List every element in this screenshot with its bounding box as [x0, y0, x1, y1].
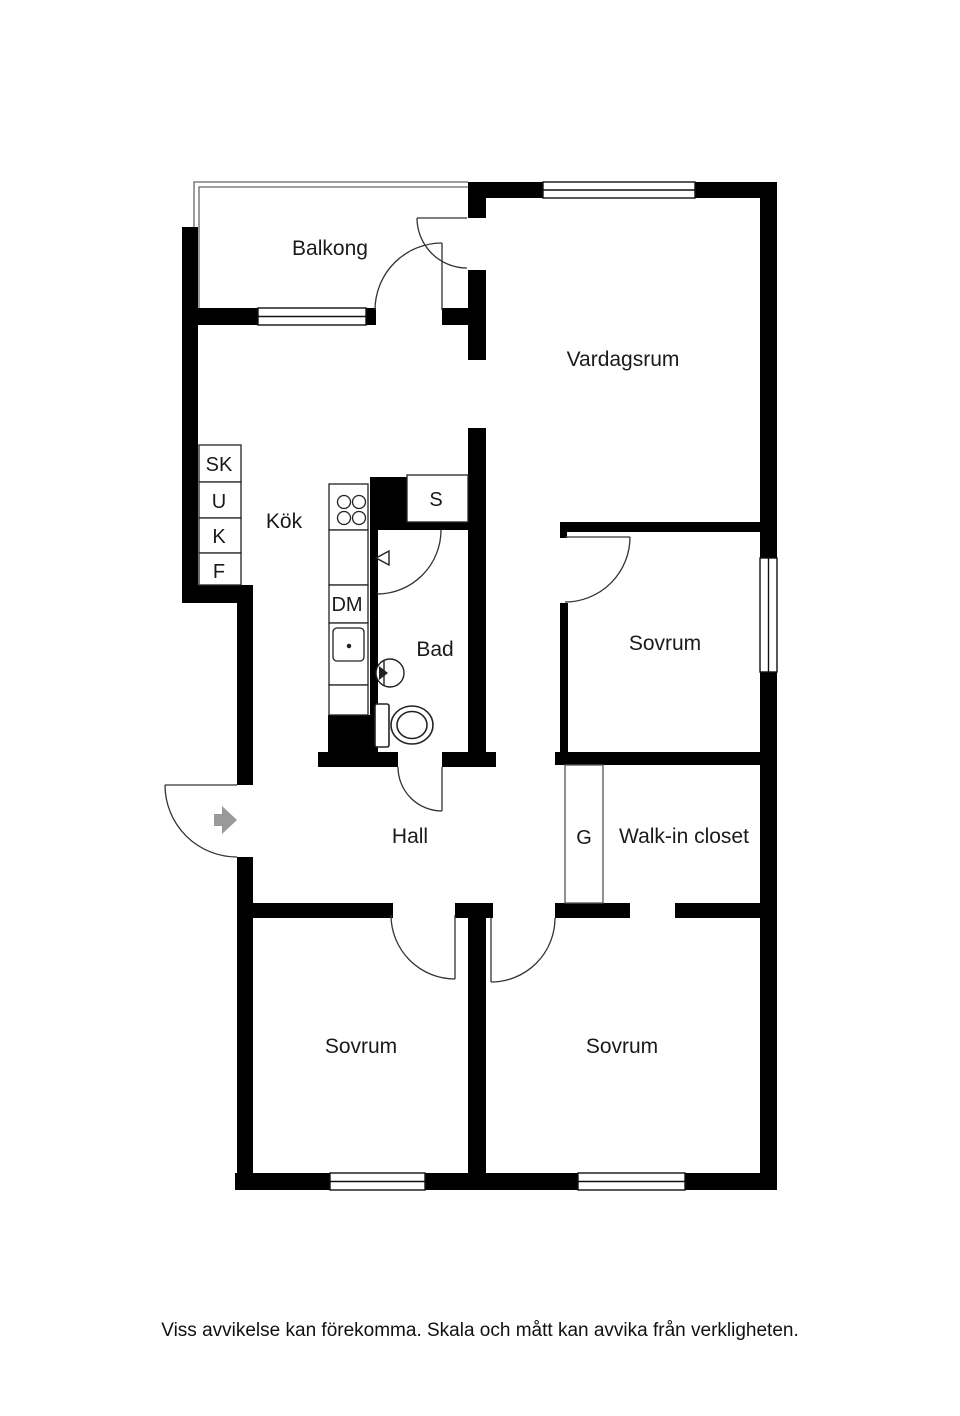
wall-segment: [318, 752, 398, 767]
window: [578, 1173, 685, 1190]
door-bedroom-se: [491, 918, 555, 982]
closet-label-s: S: [429, 489, 442, 511]
wall-segment: [378, 477, 407, 522]
wall-segment: [560, 522, 567, 538]
wall-segment: [237, 903, 393, 918]
wall-segment: [182, 227, 198, 585]
closet-label-k: K: [212, 526, 226, 548]
door-bathroom: [398, 767, 442, 811]
wall-segment: [442, 752, 496, 767]
wall-segment: [182, 308, 258, 325]
wall-segment: [760, 182, 777, 558]
wall-segment: [560, 522, 762, 532]
closet-label-sk: SK: [206, 454, 233, 476]
washbasin-icon: [376, 659, 404, 687]
counter-cabinet: [329, 685, 368, 715]
room-label-walk-in-closet: Walk-in closet: [619, 825, 749, 848]
window: [543, 182, 695, 198]
closet-label-g: G: [576, 827, 592, 849]
closet-label-u: U: [212, 491, 226, 513]
entry-arrow-icon: [214, 806, 237, 834]
wall-segment: [468, 918, 486, 1173]
window: [330, 1173, 425, 1190]
door-bedroom-sw: [391, 915, 455, 979]
wall-segment: [182, 585, 253, 603]
wall-segment: [237, 603, 253, 785]
room-label-balkong: Balkong: [292, 237, 368, 260]
toilet-icon: [375, 704, 433, 747]
appliance-label-dm: DM: [331, 594, 362, 616]
room-label-sovrum-sw: Sovrum: [325, 1035, 397, 1058]
floor-plan: Balkong Vardagsrum Kök Bad Sovrum Hall W…: [0, 0, 960, 1411]
wall-segment: [468, 182, 486, 218]
room-label-bad: Bad: [416, 638, 453, 661]
window: [258, 308, 366, 325]
sink-icon: [333, 628, 364, 661]
wall-segment: [455, 903, 493, 918]
room-label-sovrum-se: Sovrum: [586, 1035, 658, 1058]
room-label-sovrum-ne: Sovrum: [629, 632, 701, 655]
closet-label-f: F: [213, 561, 225, 583]
wall-segment: [425, 1173, 578, 1190]
room-label-kok: Kök: [266, 510, 303, 533]
wall-segment: [555, 752, 767, 765]
wall-segment: [675, 903, 767, 918]
counter-cabinet: [329, 530, 368, 585]
wall-segment: [468, 428, 486, 752]
wall-segment: [560, 603, 568, 752]
wall-segment: [685, 1173, 777, 1190]
wall-segment: [760, 672, 777, 1190]
wall-segment: [555, 903, 630, 918]
door-bedroom-ne: [565, 537, 630, 602]
wall-segment: [366, 308, 376, 325]
wall-segment: [328, 715, 377, 752]
wall-segment: [468, 270, 486, 360]
room-label-vardagsrum: Vardagsrum: [567, 348, 680, 371]
walls: [182, 182, 777, 1190]
disclaimer-text: Viss avvikelse kan förekomma. Skala och …: [161, 1320, 799, 1341]
floor-plan-page: Balkong Vardagsrum Kök Bad Sovrum Hall W…: [0, 0, 960, 1411]
window: [760, 558, 777, 672]
room-label-hall: Hall: [392, 825, 428, 848]
wall-segment: [370, 522, 486, 530]
